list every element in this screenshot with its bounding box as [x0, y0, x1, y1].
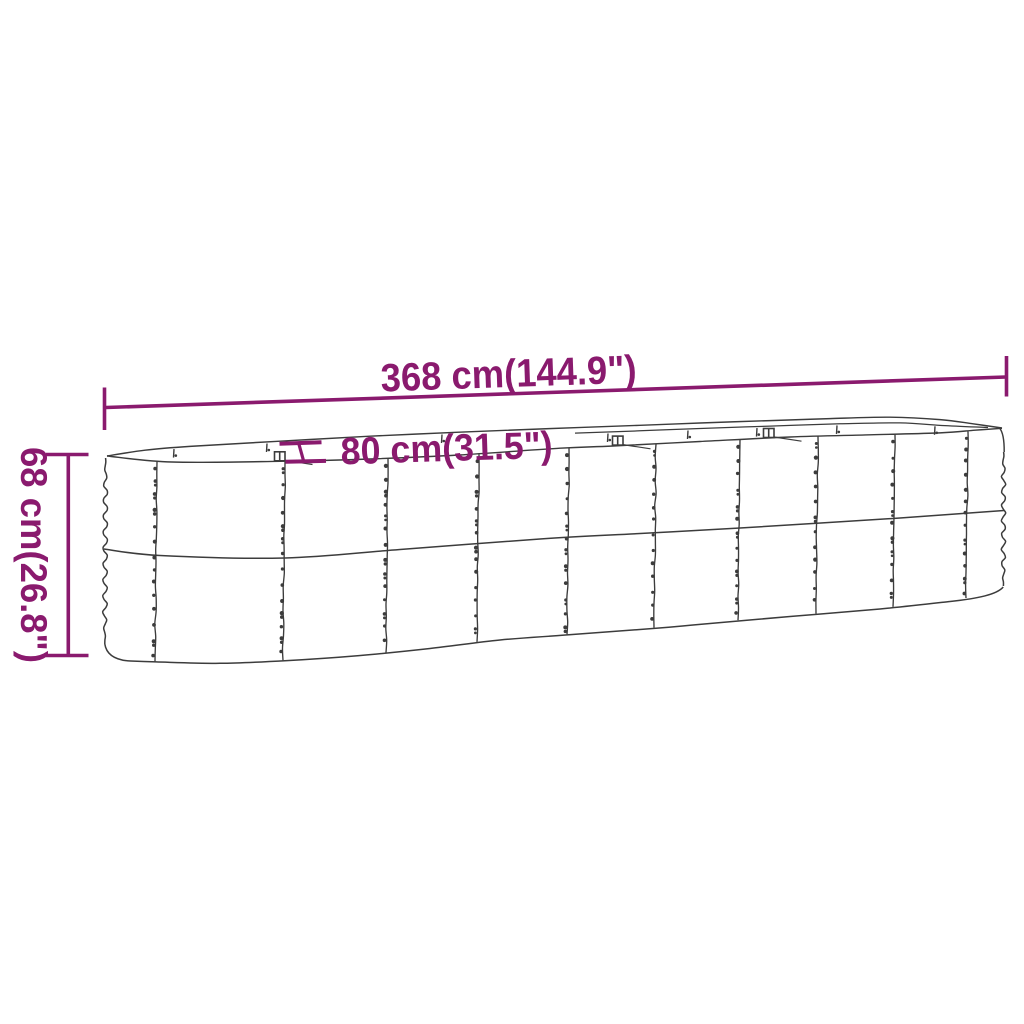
svg-text:68 cm(26.8"): 68 cm(26.8") [13, 447, 54, 663]
svg-text:80 cm(31.5"): 80 cm(31.5") [340, 425, 553, 474]
svg-text:368 cm(144.9"): 368 cm(144.9") [380, 348, 637, 401]
